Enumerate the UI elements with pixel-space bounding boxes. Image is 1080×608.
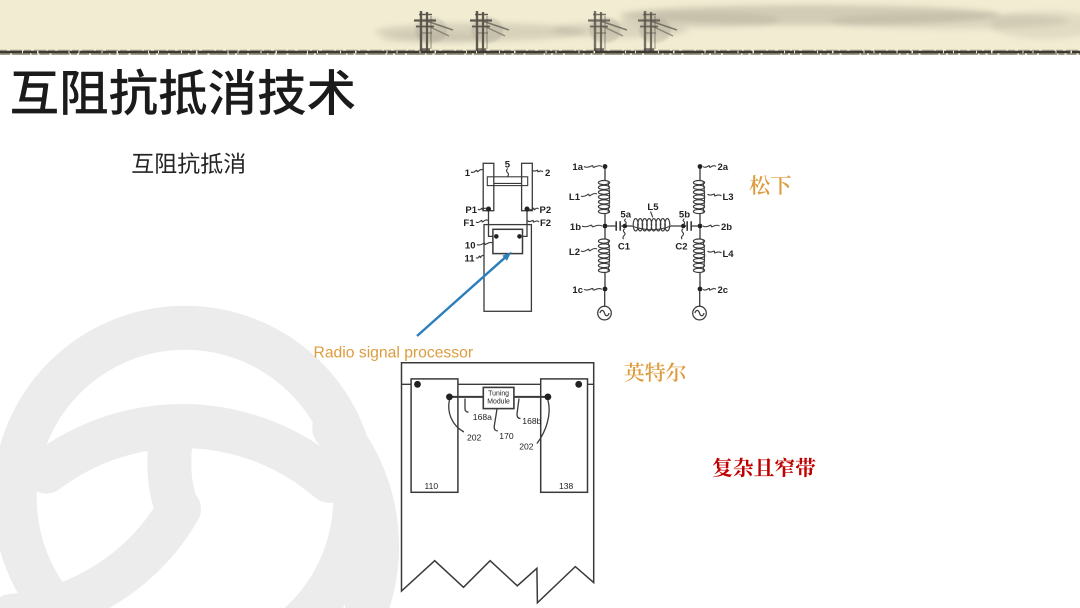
svg-text:10: 10: [465, 241, 476, 252]
svg-text:2a: 2a: [718, 162, 729, 173]
svg-text:2c: 2c: [718, 285, 729, 296]
svg-text:110: 110: [425, 481, 439, 491]
svg-text:202: 202: [519, 442, 534, 452]
svg-text:2b: 2b: [721, 222, 732, 233]
svg-text:C1: C1: [618, 242, 631, 253]
svg-text:138: 138: [559, 481, 573, 491]
svg-text:11: 11: [464, 254, 475, 265]
svg-text:L1: L1: [569, 192, 581, 203]
svg-text:F1: F1: [463, 218, 475, 229]
svg-text:1c: 1c: [572, 285, 583, 296]
svg-text:1a: 1a: [572, 162, 583, 173]
svg-text:F2: F2: [540, 218, 551, 229]
svg-text:Tuning: Tuning: [488, 391, 509, 398]
svg-text:P2: P2: [540, 205, 552, 216]
svg-text:1b: 1b: [570, 222, 581, 233]
svg-text:2: 2: [545, 168, 550, 179]
svg-text:168b: 168b: [522, 416, 541, 426]
svg-text:168a: 168a: [473, 412, 492, 422]
svg-text:L4: L4: [723, 249, 735, 260]
svg-text:C2: C2: [675, 242, 687, 253]
svg-text:Module: Module: [487, 399, 510, 406]
svg-text:Radio signal processor: Radio signal processor: [314, 345, 474, 362]
svg-text:170: 170: [499, 431, 514, 441]
svg-text:5b: 5b: [679, 210, 690, 221]
svg-text:P1: P1: [465, 205, 477, 216]
svg-text:202: 202: [467, 432, 482, 442]
svg-text:L5: L5: [647, 202, 659, 213]
svg-text:5a: 5a: [620, 210, 631, 221]
svg-text:L2: L2: [569, 247, 580, 258]
svg-text:1: 1: [465, 168, 471, 179]
svg-text:L3: L3: [723, 192, 734, 203]
